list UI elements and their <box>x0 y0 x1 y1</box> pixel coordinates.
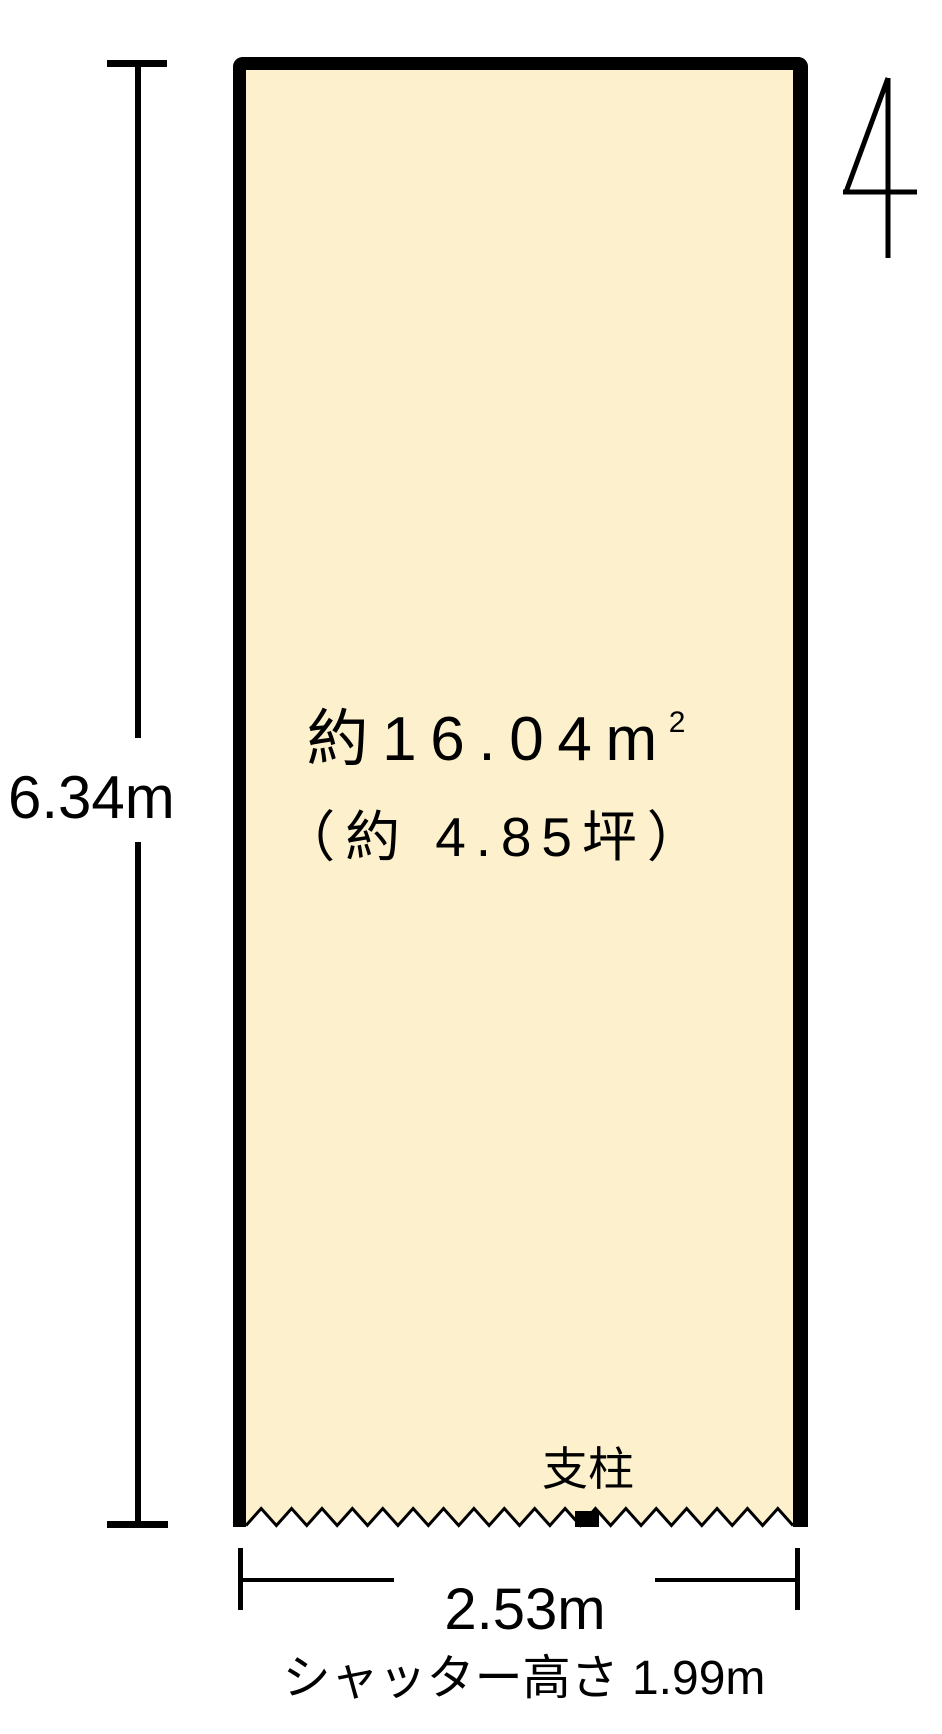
unit-number: 4 <box>833 62 928 267</box>
width-dimension-line-right <box>655 1578 800 1582</box>
height-dimension-line-lower <box>135 842 141 1526</box>
height-dimension-line-upper <box>135 64 141 738</box>
unit-area-sqm: 約16.04m2 <box>196 688 796 778</box>
unit-area-tsubo: （約 4.85坪） <box>196 792 796 872</box>
pillar-label: 支柱 <box>498 1444 678 1495</box>
width-dimension-line-left <box>238 1578 394 1582</box>
pillar-marker <box>575 1511 599 1527</box>
width-dimension-label: 2.53m <box>395 1576 655 1643</box>
shutter-zigzag-edge <box>246 1506 793 1528</box>
unit-number-glyph <box>833 62 928 267</box>
unit-area-sqm-unit: m <box>606 705 671 774</box>
floor-plan-canvas: 6.34m 支柱 約16.04m2 （約 4.85坪） 4 2.53m シャッタ… <box>0 0 942 1734</box>
width-dimension-tick-right <box>795 1548 800 1610</box>
unit-area-sqm-value: 約16.04 <box>307 705 606 774</box>
shutter-height-label: シャッター高さ 1.99m <box>224 1638 824 1708</box>
height-dimension-label: 6.34m <box>8 763 175 832</box>
unit-area-sqm-exponent: 2 <box>669 706 686 739</box>
height-dimension-tick-bottom <box>107 1521 168 1528</box>
